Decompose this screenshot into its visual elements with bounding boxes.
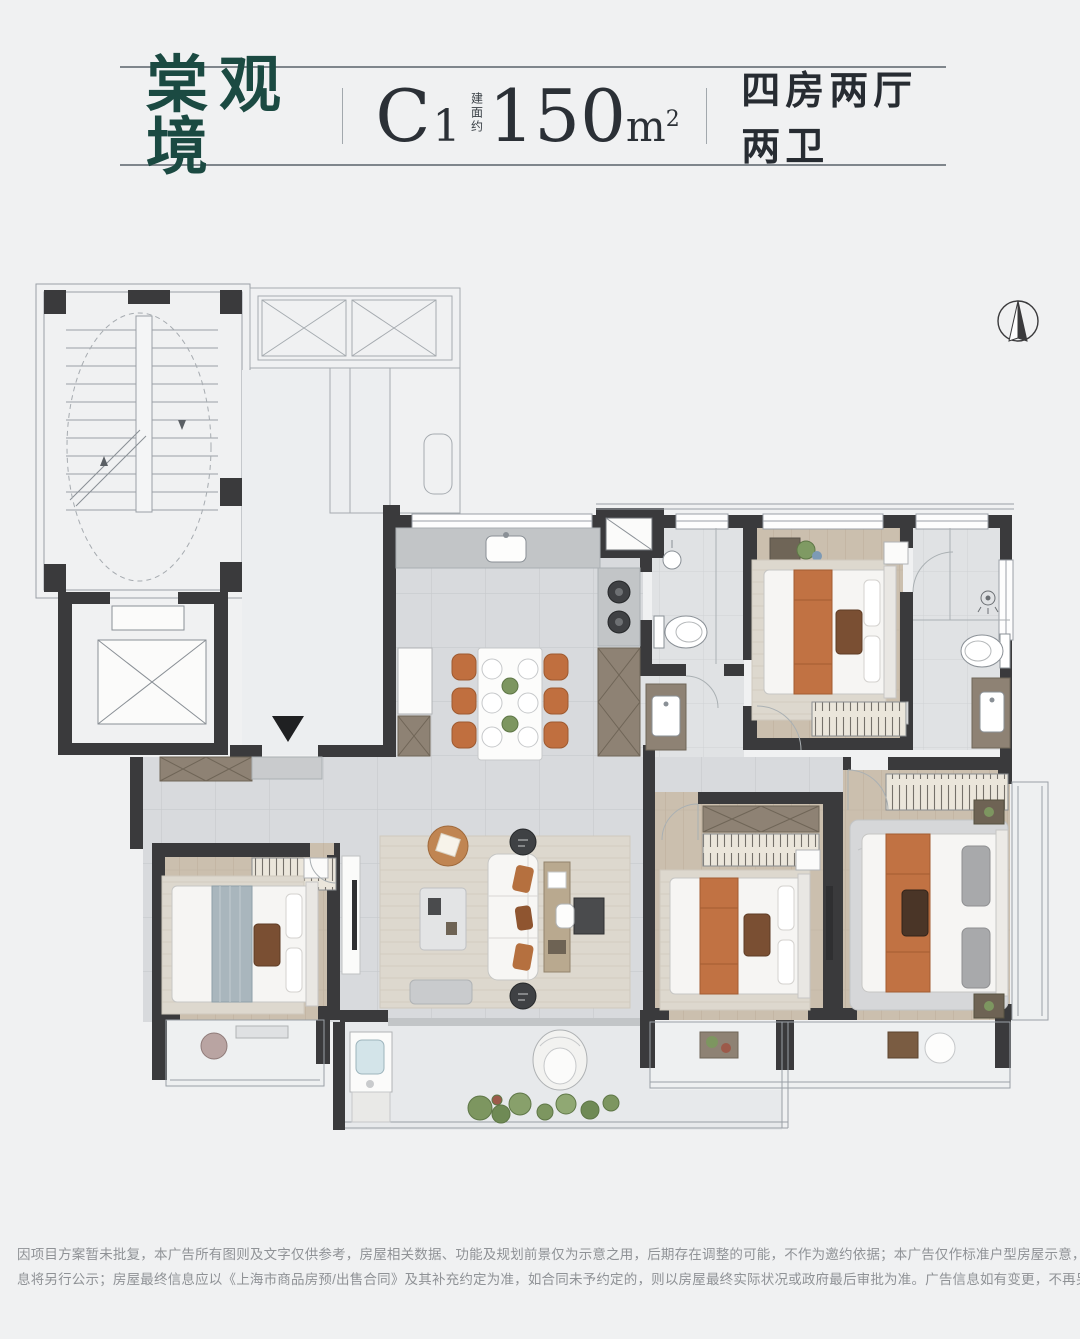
- stairs: [66, 313, 218, 581]
- storage-cabinet: [703, 806, 819, 832]
- nightstand: [796, 850, 820, 870]
- floor-plan: [0, 0, 1080, 1339]
- bed-tray: [836, 610, 862, 654]
- dining-set: [452, 648, 568, 760]
- tv-icon: [352, 880, 357, 950]
- east-bay: [1012, 782, 1048, 1020]
- corridor-floor: [242, 370, 390, 755]
- washer: [350, 1032, 392, 1092]
- fridge: [398, 648, 432, 714]
- tv-console: [342, 856, 360, 974]
- disclaimer-line-2: 息将另行公示；房屋最终信息应以《上海市商品房预/出售合同》及其补充约定为准，如合…: [17, 1267, 1069, 1292]
- disclaimer: 因项目方案暂未批复，本广告所有图则及文字仅供参考，房屋相关数据、功能及规划前景仅…: [17, 1242, 1069, 1292]
- disclaimer-line-1: 因项目方案暂未批复，本广告所有图则及文字仅供参考，房屋相关数据、功能及规划前景仅…: [17, 1242, 1069, 1267]
- elevator: [58, 592, 228, 755]
- bed-tray: [744, 914, 770, 956]
- plant-icon: [201, 1033, 227, 1059]
- wardrobe: [812, 702, 906, 736]
- bed-tray: [902, 890, 928, 936]
- toilet-icon: [961, 635, 1003, 667]
- bedroom1: [752, 538, 908, 736]
- tall-cabinet: [598, 648, 640, 756]
- nightstand: [974, 994, 1004, 1018]
- vanity: [646, 684, 686, 750]
- bed-tray: [254, 924, 280, 966]
- sofa: [488, 854, 538, 980]
- low-cabinet: [398, 716, 430, 756]
- poster-page: 棠观境 C1 建面约 150 m2 四房两厅两卫: [0, 0, 1080, 1339]
- basin-icon: [663, 551, 681, 569]
- shoe-cabinet: [160, 757, 322, 781]
- bed: [172, 882, 318, 1006]
- bench: [410, 980, 472, 1004]
- table-plant: [502, 716, 518, 732]
- bed: [862, 830, 1008, 996]
- bed: [670, 874, 810, 998]
- nightstand: [884, 542, 908, 564]
- toilet-icon: [665, 616, 707, 648]
- kitchen-sink: [486, 536, 526, 562]
- nightstand: [974, 800, 1004, 824]
- vanity: [972, 678, 1010, 748]
- table-plant: [502, 678, 518, 694]
- bath-public-floor: [652, 528, 744, 676]
- north-compass-icon: [998, 301, 1038, 341]
- side-table: [510, 983, 536, 1009]
- nightstand: [304, 858, 328, 878]
- coffee-table: [420, 888, 466, 950]
- armchair: [533, 1030, 587, 1090]
- pouf: [428, 826, 468, 866]
- side-table: [510, 829, 536, 855]
- tv-icon: [826, 886, 833, 960]
- bed: [764, 566, 896, 698]
- inner-hall-floor: [655, 757, 843, 792]
